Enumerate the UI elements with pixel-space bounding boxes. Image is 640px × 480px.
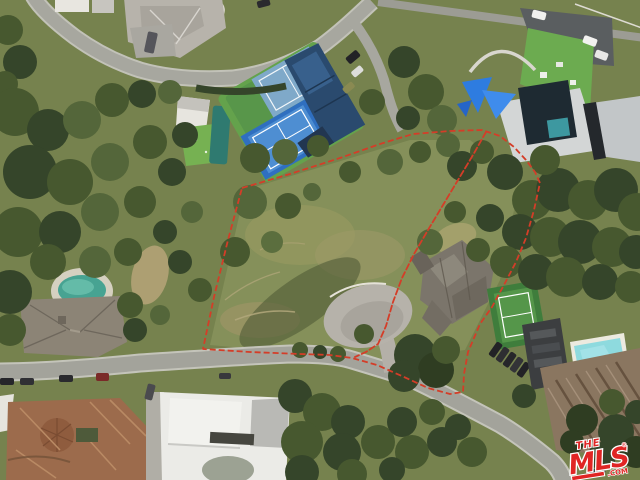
logo-registered-mark: ® bbox=[621, 441, 628, 449]
solar-panels bbox=[210, 432, 255, 445]
modern-white-house bbox=[146, 392, 290, 480]
small-structure bbox=[55, 0, 89, 12]
house-roof bbox=[20, 296, 127, 357]
aerial-photo: THE MLS ® .COM bbox=[0, 0, 640, 480]
spanish-villa bbox=[0, 394, 150, 480]
aerial-photo-canvas: THE MLS ® .COM bbox=[0, 0, 640, 480]
